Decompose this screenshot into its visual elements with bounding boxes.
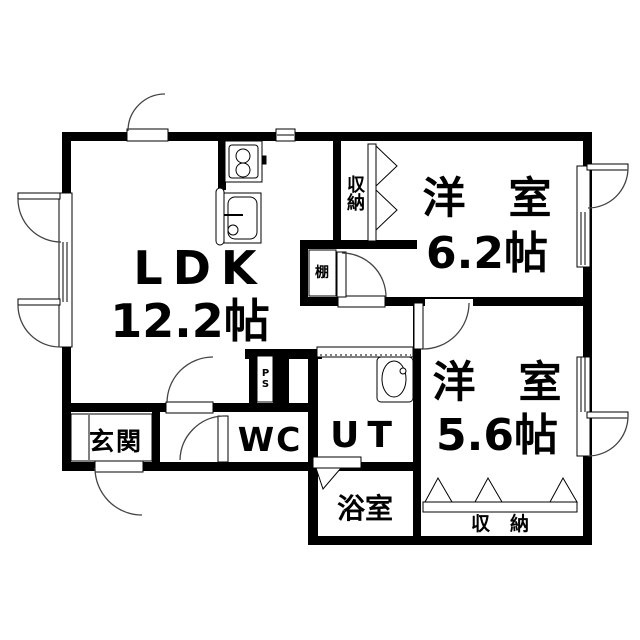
wall-ps-left <box>249 357 257 407</box>
wall-ldk-bottom-b <box>213 403 318 412</box>
wall-ps-right <box>273 357 289 407</box>
window-bedroom62 <box>577 164 628 267</box>
door-bedroom62 <box>337 252 386 307</box>
window-bedroom56 <box>577 357 628 456</box>
wall-divider-c <box>473 297 584 306</box>
window-top-small <box>276 129 295 141</box>
room-toilet-label: WC <box>234 419 306 459</box>
wall-lower-connector <box>308 462 318 545</box>
floor-plan: LDK 12.2帖 洋 室 6.2帖 洋 室 5.6帖 玄関 WC UT 浴室 … <box>0 0 640 640</box>
room-bedroom62-label: 洋 室 <box>405 174 569 224</box>
room-utility-label: UT <box>318 414 412 458</box>
closet62-label: 収納 <box>340 150 368 236</box>
pipe-space-label: PS <box>257 358 273 400</box>
door-bathroom-folding <box>313 457 361 489</box>
room-bathroom-label: 浴室 <box>320 491 410 527</box>
door-ut-sliding <box>317 347 413 357</box>
window-left <box>18 193 72 347</box>
sink-icon <box>216 188 261 245</box>
room-bedroom62-size: 6.2帖 <box>410 229 564 279</box>
wall-ut-left <box>308 358 318 462</box>
wall-divider-a <box>300 297 338 306</box>
door-entrance <box>95 461 143 515</box>
door-wc <box>180 416 228 462</box>
stove-icon <box>225 141 266 182</box>
room-bedroom56-label: 洋 室 <box>415 358 579 408</box>
wall-lintel-56-door <box>425 297 473 299</box>
door-bedroom56 <box>414 303 469 349</box>
closet56-label: 収納 <box>423 510 577 538</box>
closet62-bifold-icon <box>368 144 397 241</box>
closet56-bifold-icon <box>423 478 577 512</box>
room-ldk-size: 12.2帖 <box>92 294 288 348</box>
room-entrance-label: 玄関 <box>80 424 152 458</box>
wall-entrance-right <box>152 409 160 462</box>
room-bedroom56-size: 5.6帖 <box>420 411 574 461</box>
room-ldk-label: LDK <box>112 241 288 295</box>
door-top-exterior <box>127 94 168 141</box>
wall-closet62-bottom <box>300 240 417 249</box>
wall-shelf-left <box>300 240 308 306</box>
door-ldk-hall <box>166 357 213 413</box>
shelf-label: 棚 <box>308 255 336 291</box>
washbasin-icon <box>377 357 413 402</box>
